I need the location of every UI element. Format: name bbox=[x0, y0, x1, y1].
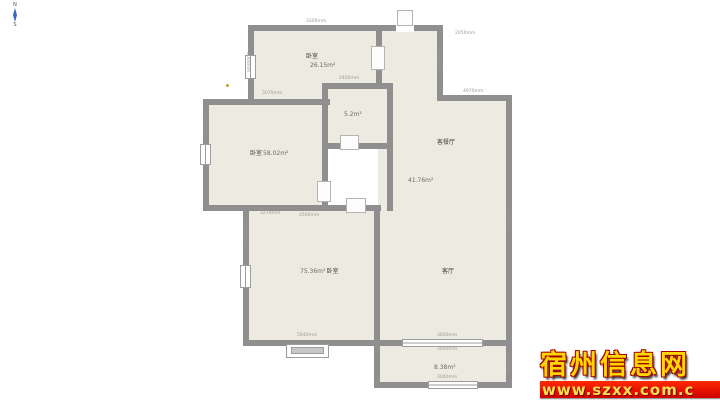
dimension-label: 3000mm bbox=[437, 347, 457, 352]
top-bedroom-area: 26.15m² bbox=[310, 62, 335, 69]
compass-south-label: S bbox=[9, 22, 21, 28]
wall-right-top bbox=[437, 95, 512, 101]
wall-bathroom-right bbox=[387, 83, 393, 211]
wall-bathroom-left-upper bbox=[322, 83, 328, 183]
compass-needle-icon bbox=[12, 8, 18, 22]
bottom-bedroom-area: 75.36m² bbox=[300, 268, 325, 275]
living-dining-area: 41.76m² bbox=[408, 177, 433, 184]
entry-door-leaf bbox=[397, 10, 413, 26]
dimension-label: 3400mm bbox=[202, 118, 207, 138]
bay-window-inner bbox=[291, 347, 324, 354]
dimension-label: 4180mm bbox=[242, 222, 247, 242]
dimension-label: 3070mm bbox=[262, 91, 282, 96]
watermark-band: www.szxx.com.c bbox=[540, 381, 720, 398]
bottom-bedroom-window bbox=[240, 265, 251, 288]
compass-rose: N S bbox=[9, 2, 21, 28]
bathroom-area: 5.2m² bbox=[344, 111, 362, 118]
dimension-label: 4500mm bbox=[299, 213, 319, 218]
dimension-label: 4620mm bbox=[505, 210, 510, 230]
dimension-label: 3270mm bbox=[260, 211, 280, 216]
bottom-bedroom-door bbox=[346, 198, 366, 213]
dimension-label: 3000mm bbox=[437, 333, 457, 338]
watermark-site-name: 宿州信息网 bbox=[540, 351, 720, 380]
top-bedroom-door bbox=[371, 46, 385, 70]
watermark-site-url: www.szxx.com.c bbox=[540, 381, 694, 399]
wall-living-left bbox=[374, 205, 380, 388]
dimension-label: 2400mm bbox=[339, 76, 359, 81]
wall-right-outer bbox=[506, 95, 512, 388]
balcony-area: 8.38m² bbox=[434, 364, 456, 371]
dimension-label: 5640mm bbox=[297, 333, 317, 338]
mid-bedroom-door bbox=[317, 181, 331, 202]
compass-north-label: N bbox=[9, 2, 21, 8]
living-name: 客厅 bbox=[442, 268, 454, 275]
dimension-label: 4000mm bbox=[245, 52, 250, 72]
watermark: 宿州信息网 www.szxx.com.c bbox=[540, 351, 720, 398]
dimension-label: 1150mm bbox=[505, 353, 510, 373]
bottom-bedroom-label: 75.36m² 卧室 bbox=[300, 268, 338, 275]
marker-dot bbox=[226, 84, 229, 87]
mid-bedroom-window bbox=[200, 144, 211, 165]
mid-bedroom-label: 卧室 58.02m² bbox=[250, 150, 288, 157]
balcony-window bbox=[428, 381, 478, 389]
mid-bedroom-area: 58.02m² bbox=[263, 150, 288, 157]
wall-bathroom-top bbox=[322, 83, 393, 89]
dimension-label: 4970mm bbox=[463, 89, 483, 94]
mid-bedroom-name: 卧室 bbox=[250, 150, 262, 157]
bottom-bedroom-name: 卧室 bbox=[326, 268, 338, 275]
wall-mid-bedroom-top bbox=[203, 99, 330, 105]
living-dining-floor bbox=[378, 95, 508, 342]
bottom-bedroom-floor bbox=[247, 211, 376, 342]
floor-plan-canvas: N S 卧室 26.15m² 卧室 58. bbox=[0, 0, 720, 405]
living-dining-name: 客餐厅 bbox=[437, 139, 455, 146]
top-bedroom-name: 卧室 bbox=[306, 53, 318, 60]
dimension-label: 2410mm bbox=[436, 50, 441, 70]
bathroom-door bbox=[340, 135, 359, 150]
dimension-label: 3000mm bbox=[437, 375, 457, 380]
living-balcony-window bbox=[402, 339, 483, 347]
dimension-label: 2050mm bbox=[455, 31, 475, 36]
dimension-label: 3300mm bbox=[306, 19, 326, 24]
